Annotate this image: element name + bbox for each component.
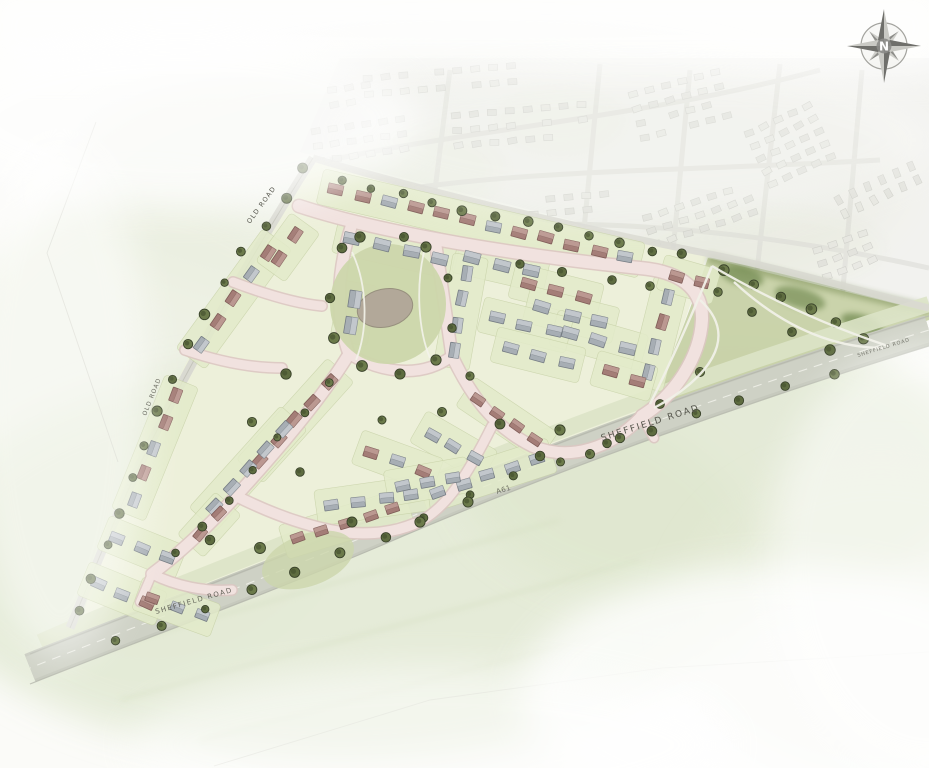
tree [201, 605, 208, 612]
tree [296, 468, 305, 477]
tree [355, 232, 365, 242]
tree [290, 567, 300, 577]
tree [466, 372, 474, 380]
tree [378, 416, 386, 424]
tree [247, 585, 257, 595]
tree [457, 206, 467, 216]
tree [157, 621, 166, 630]
tree [491, 212, 500, 221]
tree [734, 396, 743, 405]
tree [301, 409, 309, 417]
tree [205, 535, 215, 545]
house [324, 499, 339, 511]
house [461, 265, 473, 281]
tree [825, 345, 836, 356]
tree [325, 293, 334, 302]
tree [781, 382, 790, 391]
tree [347, 517, 357, 527]
tree [556, 458, 564, 466]
tree [262, 222, 271, 231]
house [445, 472, 460, 484]
tree [199, 309, 210, 320]
tree [249, 466, 256, 473]
tree [274, 434, 281, 441]
tree [444, 274, 452, 282]
tree [247, 417, 256, 426]
tree [437, 407, 446, 416]
tree [111, 636, 119, 644]
tree [646, 282, 655, 291]
tree [509, 472, 517, 480]
tree [523, 217, 533, 227]
house [348, 290, 362, 309]
tree [448, 324, 456, 332]
tree [198, 522, 207, 531]
tree [648, 247, 657, 256]
masterplan-canvas: OLD ROAD OLD ROAD SHEFFIELD ROAD SHEFFIE… [0, 0, 929, 768]
tree [172, 549, 180, 557]
tree [555, 425, 565, 435]
house [379, 492, 394, 503]
tree [152, 406, 162, 416]
house [420, 476, 436, 488]
tree [830, 369, 840, 379]
tree [281, 369, 291, 379]
tree [221, 279, 228, 286]
tree [367, 185, 375, 193]
house [351, 497, 366, 508]
tree [225, 497, 233, 505]
tree [463, 497, 473, 507]
tree [554, 223, 563, 232]
tree [431, 355, 441, 365]
tree [399, 189, 407, 197]
house [448, 342, 460, 358]
house [617, 250, 634, 262]
tree [381, 533, 391, 543]
tree [714, 288, 723, 297]
tree [788, 328, 797, 337]
tree [748, 308, 757, 317]
tree [255, 543, 266, 554]
tree [585, 449, 594, 458]
tree [399, 232, 408, 241]
tree [236, 247, 245, 256]
tree [421, 242, 431, 252]
tree [168, 375, 176, 383]
tree [395, 369, 405, 379]
site-masterplan-drawing: OLD ROAD OLD ROAD SHEFFIELD ROAD SHEFFIE… [0, 0, 929, 768]
tree [183, 339, 192, 348]
tree [806, 304, 817, 315]
tree [585, 232, 594, 241]
tree [535, 451, 545, 461]
tree [325, 379, 333, 387]
tree [677, 249, 686, 258]
tree [335, 548, 345, 558]
compass-north-label: N [879, 40, 889, 54]
tree [516, 260, 524, 268]
tree [337, 243, 347, 253]
tree [415, 517, 425, 527]
tree [557, 267, 566, 276]
tree [608, 276, 617, 285]
house [344, 316, 359, 335]
tree [428, 199, 436, 207]
tree [615, 238, 625, 248]
house [403, 245, 421, 259]
tree [357, 361, 368, 372]
tree [495, 419, 505, 429]
tree [329, 333, 340, 344]
